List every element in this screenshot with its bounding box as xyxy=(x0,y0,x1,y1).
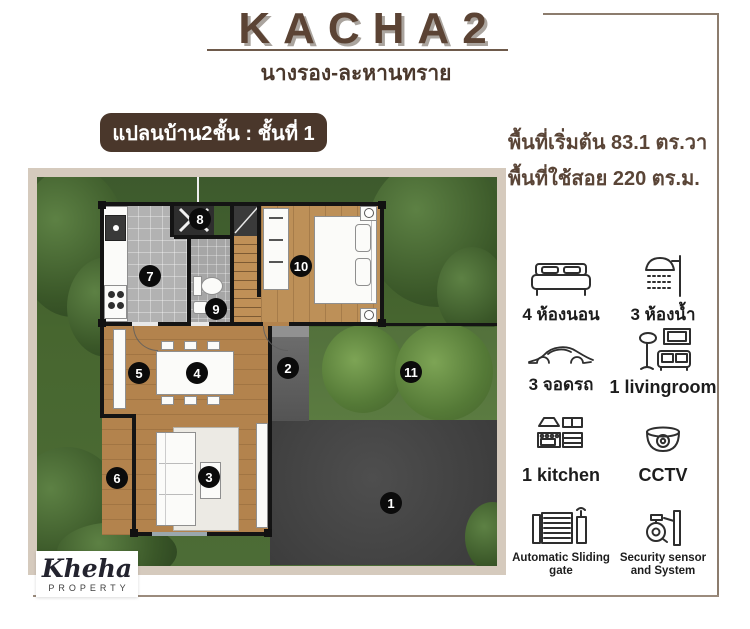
driveway-area xyxy=(270,420,497,565)
column xyxy=(378,319,386,327)
feature-gate: Automatic Sliding gate xyxy=(513,486,609,578)
stove xyxy=(104,285,127,319)
feature-security: Security sensor and System xyxy=(609,486,717,578)
wardrobe xyxy=(263,208,289,290)
room-marker-7: 7 xyxy=(139,265,161,287)
features-panel: 4 ห้องนอน 3 ห้องน้ำ 3 จอดรถ xyxy=(513,258,717,580)
feature-label: 3 ห้องน้ำ xyxy=(630,301,695,328)
wall xyxy=(187,235,191,326)
room-marker-3: 3 xyxy=(198,466,220,488)
room-marker-9: 9 xyxy=(205,298,227,320)
feature-bathrooms: 3 ห้องน้ำ xyxy=(609,258,717,328)
column xyxy=(264,529,272,537)
column xyxy=(98,201,106,209)
feature-label: 1 livingroom xyxy=(609,377,716,398)
room-marker-6: 6 xyxy=(106,467,128,489)
floor-plan-canvas: 1 2 3 4 5 6 7 8 9 10 11 xyxy=(37,177,497,566)
dining-chair xyxy=(184,341,197,350)
room-marker-5: 5 xyxy=(128,362,150,384)
roof-pipe xyxy=(197,177,199,204)
pillow xyxy=(355,258,371,286)
room-marker-1: 1 xyxy=(380,492,402,514)
room-marker-8: 8 xyxy=(189,208,211,230)
floor-plan-image: 1 2 3 4 5 6 7 8 9 10 11 xyxy=(28,168,506,575)
lamp xyxy=(364,310,374,320)
lawn-tree xyxy=(322,325,404,413)
room-marker-4: 4 xyxy=(186,362,208,384)
feature-label: CCTV xyxy=(639,465,688,486)
dining-chair xyxy=(207,396,220,405)
kitchen-sink xyxy=(105,215,126,241)
wall xyxy=(170,204,174,237)
dining-chair xyxy=(161,341,174,350)
feature-parking: 3 จอดรถ xyxy=(513,328,609,398)
security-icon xyxy=(642,509,684,549)
area-start-text: พื้นที่เริ่มต้น 83.1 ตร.วา xyxy=(508,126,728,158)
fence-line xyxy=(380,323,497,326)
wall xyxy=(100,326,104,418)
column xyxy=(130,529,138,537)
room-marker-10: 10 xyxy=(290,255,312,277)
kitchen-icon xyxy=(534,415,588,461)
floor-plan-badge: แปลนบ้าน2ชั้น : ชั้นที่ 1 xyxy=(100,113,327,152)
brand-logo: Kheha PROPERTY xyxy=(36,551,138,597)
area-usable-text: พื้นที่ใช้สอย 220 ตร.ม. xyxy=(508,162,728,194)
tv-cabinet xyxy=(256,423,268,528)
sideboard xyxy=(113,329,126,409)
wall xyxy=(174,235,234,239)
title-underline xyxy=(207,49,508,51)
livingroom-icon xyxy=(634,327,692,373)
feature-livingroom: 1 livingroom xyxy=(609,328,717,398)
frame-line-right xyxy=(717,13,719,597)
gate-icon xyxy=(530,505,592,549)
wall xyxy=(100,414,136,418)
brand-name: Kheha xyxy=(42,556,132,581)
sofa xyxy=(156,432,196,526)
lamp xyxy=(364,208,374,218)
feature-bedrooms: 4 ห้องนอน xyxy=(513,258,609,328)
feature-cctv: CCTV xyxy=(609,398,717,486)
room-marker-2: 2 xyxy=(277,357,299,379)
wall xyxy=(230,202,234,326)
wall xyxy=(257,202,261,297)
feature-label: 4 ห้องนอน xyxy=(522,301,599,328)
wall xyxy=(100,202,384,206)
wall xyxy=(100,202,104,326)
column xyxy=(98,319,106,327)
car-icon xyxy=(527,338,595,368)
feature-label: Automatic Sliding gate xyxy=(511,552,611,578)
page-title: KACHA2 xyxy=(120,4,605,54)
pillow xyxy=(355,224,371,252)
brand-tagline: PROPERTY xyxy=(44,583,129,593)
feature-label: 3 จอดรถ xyxy=(529,371,594,398)
door-opening xyxy=(189,322,209,326)
frame-line-top xyxy=(543,13,719,15)
cctv-icon xyxy=(640,425,686,461)
dining-chair xyxy=(207,341,220,350)
toilet-bowl xyxy=(201,277,223,295)
wall xyxy=(380,202,384,326)
room-marker-11: 11 xyxy=(400,361,422,383)
shower-icon xyxy=(639,254,687,298)
column xyxy=(378,201,386,209)
feature-label: Security sensor and System xyxy=(613,552,713,578)
bed-icon xyxy=(529,262,593,298)
location-subtitle: นางรอง-ละหานทราย xyxy=(120,57,592,90)
dining-chair xyxy=(161,396,174,405)
wall xyxy=(132,418,136,536)
feature-kitchen: 1 kitchen xyxy=(513,398,609,486)
feature-label: 1 kitchen xyxy=(522,465,600,486)
sliding-glass-door xyxy=(152,532,207,536)
wall xyxy=(268,326,272,536)
dining-chair xyxy=(184,396,197,405)
